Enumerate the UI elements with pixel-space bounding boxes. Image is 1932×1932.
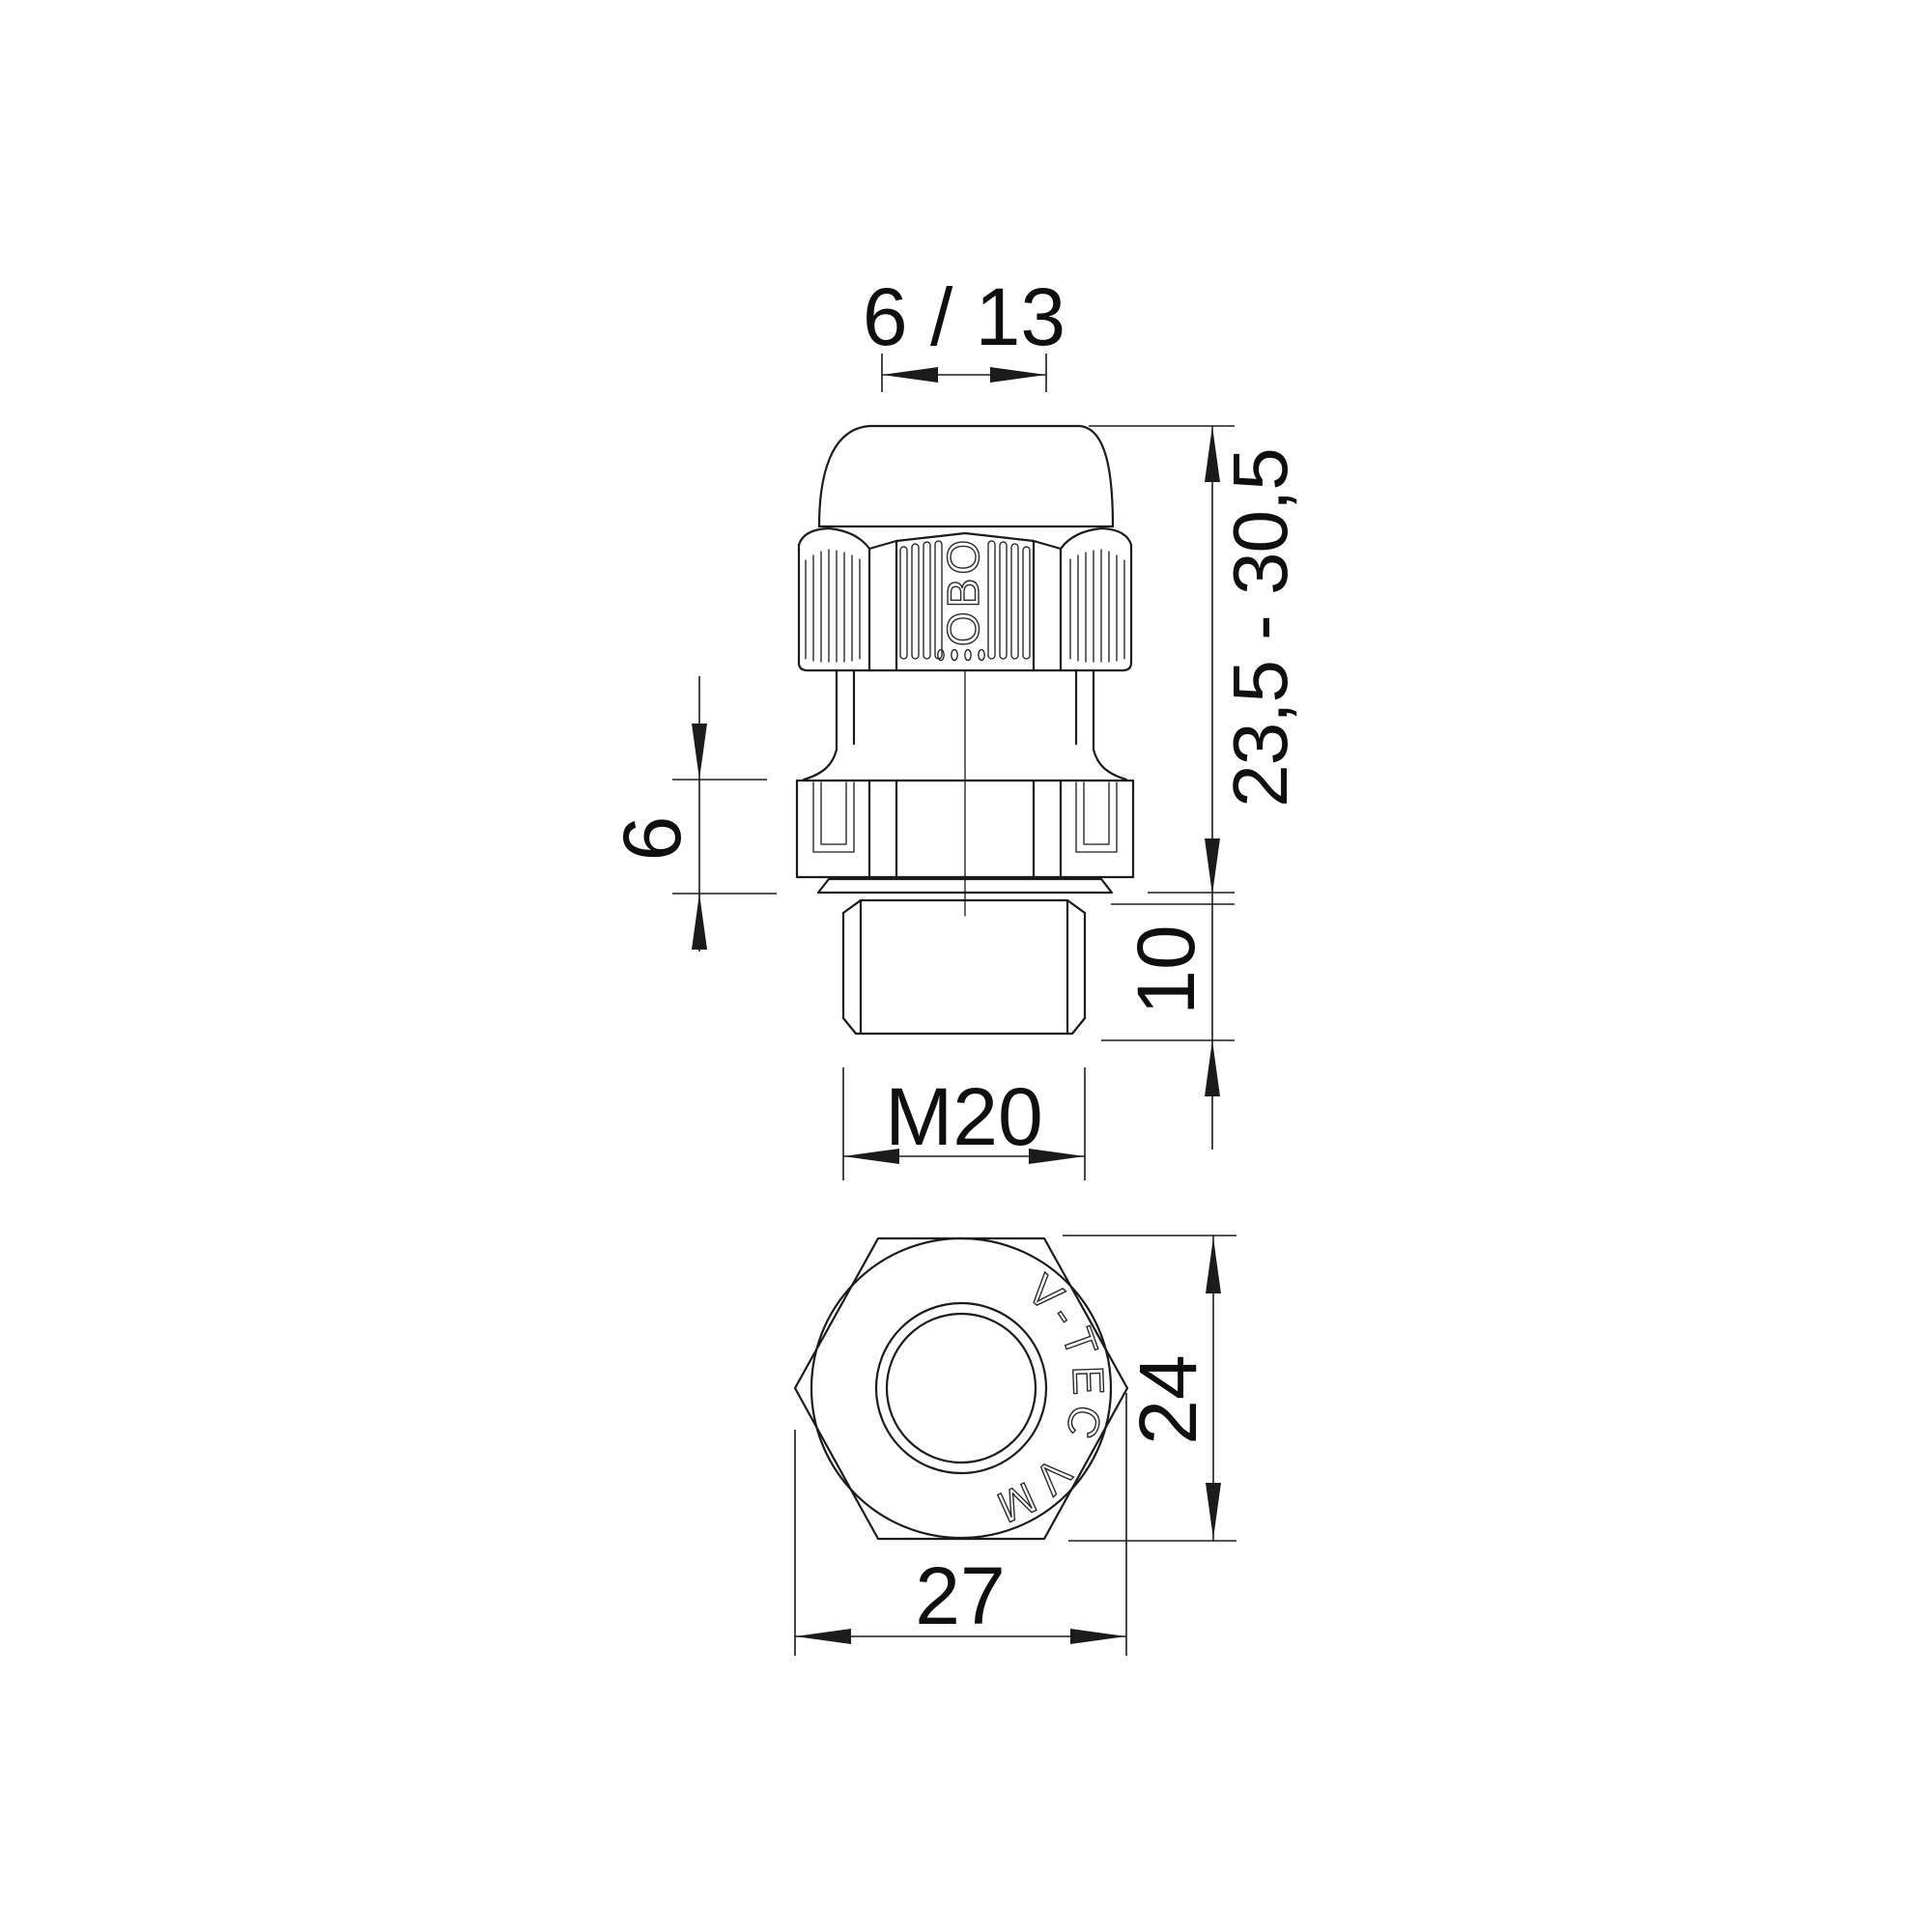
technical-drawing: OBO	[0, 0, 1932, 1932]
dimension-clamping-range: 6 / 13	[863, 271, 1065, 392]
dim-label-clamping-range: 6 / 13	[863, 271, 1065, 362]
bore-outer-circle	[876, 1303, 1046, 1473]
dimension-collar-height: 6	[607, 676, 777, 952]
dimension-thread-length: 10	[1101, 904, 1235, 1096]
cap-knurl-band: OBO	[799, 528, 1131, 670]
cap-dots	[938, 650, 984, 661]
dim-label-body-height: 23,5 - 30,5	[1217, 448, 1303, 808]
dim-label-thread-size: M20	[885, 1071, 1042, 1162]
bottom-view: V-TEC VM	[795, 1238, 1127, 1539]
dim-label-thread-length: 10	[1121, 924, 1211, 1014]
bottom-marking: V-TEC VM	[984, 1264, 1114, 1535]
cap-brand-marking: OBO	[938, 536, 988, 646]
cap-dome	[819, 426, 1113, 526]
left-wing-ribs	[806, 550, 860, 662]
dim-label-across-corners: 27	[915, 1550, 1005, 1641]
drawing-canvas: OBO	[0, 0, 1932, 1932]
dimension-thread-size: M20	[843, 1067, 1085, 1180]
dim-label-collar-height: 6	[607, 816, 697, 862]
side-view: OBO	[797, 426, 1133, 1034]
dim-label-across-flats: 24	[1122, 1354, 1213, 1444]
right-wing-ribs	[1070, 550, 1124, 662]
bore-inner-circle	[887, 1314, 1036, 1463]
threaded-stem	[843, 900, 1085, 1034]
